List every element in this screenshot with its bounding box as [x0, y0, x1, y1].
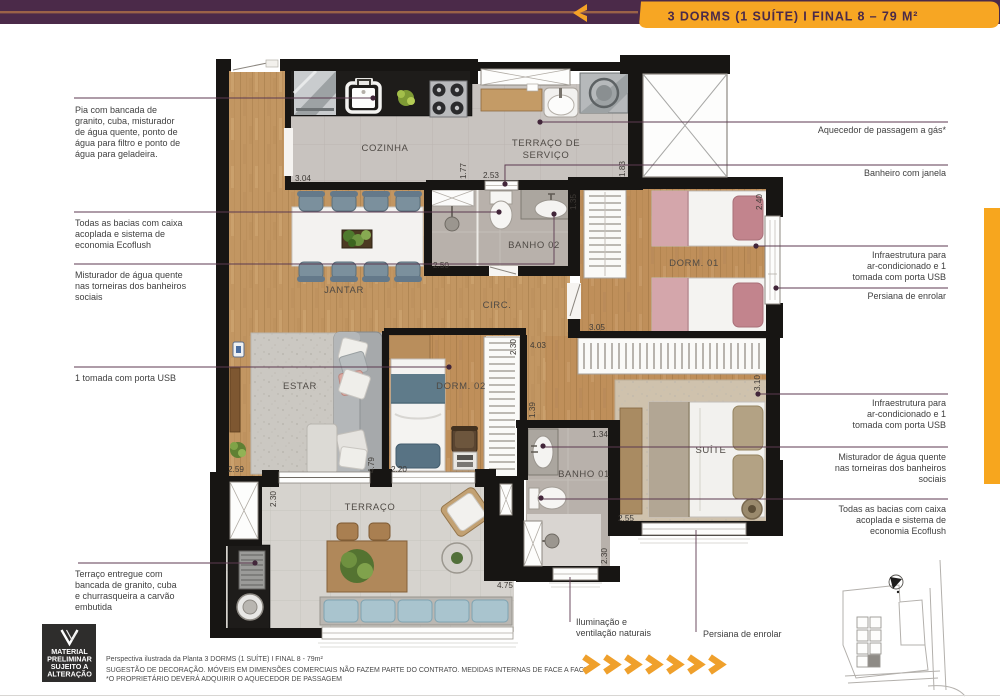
svg-text:tomada com porta USB: tomada com porta USB [852, 420, 946, 430]
svg-text:Pia com bancada de: Pia com bancada de [75, 105, 157, 115]
svg-text:1.34: 1.34 [592, 430, 608, 439]
svg-text:embutida: embutida [75, 602, 112, 612]
svg-text:Banheiro com janela: Banheiro com janela [864, 168, 946, 178]
svg-text:2.30: 2.30 [509, 339, 518, 355]
svg-text:*O PROPRIETÁRIO DEVERÁ ADQUIRI: *O PROPRIETÁRIO DEVERÁ ADQUIRIR O AQUECE… [106, 674, 342, 683]
svg-text:3 DORMS (1 SUÍTE) I FINAL 8 –: 3 DORMS (1 SUÍTE) I FINAL 8 – 79 M² [668, 9, 919, 24]
svg-text:ALTERAÇÃO: ALTERAÇÃO [47, 670, 92, 679]
svg-text:1.39: 1.39 [528, 402, 537, 418]
svg-text:bancada de granito, cuba: bancada de granito, cuba [75, 580, 177, 590]
svg-text:TERRAÇO DE: TERRAÇO DE [512, 138, 580, 149]
svg-text:4.75: 4.75 [497, 581, 513, 590]
svg-text:4.79: 4.79 [367, 457, 376, 473]
svg-text:2.20: 2.20 [391, 465, 407, 474]
svg-text:1 tomada com porta USB: 1 tomada com porta USB [75, 373, 176, 383]
svg-text:JANTAR: JANTAR [324, 285, 364, 296]
svg-text:DORM. 01: DORM. 01 [669, 258, 719, 269]
svg-text:Infraestrutura para: Infraestrutura para [872, 398, 946, 408]
svg-text:sociais: sociais [918, 474, 946, 484]
svg-text:ventilação naturais: ventilação naturais [576, 628, 652, 638]
svg-text:economia Ecoflush: economia Ecoflush [75, 240, 151, 250]
svg-text:CIRC.: CIRC. [483, 300, 512, 311]
svg-text:ar-condicionado e 1: ar-condicionado e 1 [867, 409, 946, 419]
svg-text:água para geladeira.: água para geladeira. [75, 149, 158, 159]
svg-text:ESTAR: ESTAR [283, 381, 317, 392]
svg-text:2.53: 2.53 [483, 171, 499, 180]
svg-text:de água quente, ponto de: de água quente, ponto de [75, 127, 178, 137]
svg-text:economia Ecoflush: economia Ecoflush [870, 526, 946, 536]
svg-text:Misturador de água quente: Misturador de água quente [838, 452, 946, 462]
svg-text:Perspectiva ilustrada da Plant: Perspectiva ilustrada da Planta 3 DORMS … [106, 654, 323, 663]
svg-text:2.55: 2.55 [618, 514, 634, 523]
svg-text:Todas as bacias com caixa: Todas as bacias com caixa [75, 218, 183, 228]
svg-text:BANHO 01: BANHO 01 [558, 469, 610, 480]
svg-text:Misturador de água quente: Misturador de água quente [75, 270, 183, 280]
svg-text:acoplada e sistema de: acoplada e sistema de [856, 515, 946, 525]
svg-text:Iluminação e: Iluminação e [576, 617, 627, 627]
svg-text:e churrasqueira a carvão: e churrasqueira a carvão [75, 591, 175, 601]
svg-text:TERRAÇO: TERRAÇO [345, 502, 396, 513]
svg-text:Aquecedor de passagem a gás*: Aquecedor de passagem a gás* [818, 125, 947, 135]
svg-text:sociais: sociais [75, 292, 103, 302]
svg-text:DORM. 02: DORM. 02 [436, 381, 486, 392]
svg-text:granito, cuba, misturador: granito, cuba, misturador [75, 116, 175, 126]
svg-text:2.40: 2.40 [755, 194, 764, 210]
svg-text:Persiana de enrolar: Persiana de enrolar [867, 291, 946, 301]
svg-text:tomada com porta USB: tomada com porta USB [852, 272, 946, 282]
svg-text:Infraestrutura para: Infraestrutura para [872, 250, 946, 260]
svg-text:Persiana de enrolar: Persiana de enrolar [703, 629, 782, 639]
svg-text:2.50: 2.50 [433, 261, 449, 270]
svg-text:nas torneiras dos banheiros: nas torneiras dos banheiros [835, 463, 947, 473]
svg-text:SERVIÇO: SERVIÇO [523, 150, 570, 161]
svg-text:1.35: 1.35 [569, 194, 578, 210]
svg-text:água para filtro e ponto de: água para filtro e ponto de [75, 138, 180, 148]
svg-text:1.83: 1.83 [618, 161, 627, 177]
svg-text:1.77: 1.77 [459, 163, 468, 179]
svg-text:SUGESTÃO DE DECORAÇÃO. MÓVEIS: SUGESTÃO DE DECORAÇÃO. MÓVEIS EM DIMENSÕ… [106, 665, 591, 674]
svg-text:3.04: 3.04 [295, 174, 311, 183]
svg-text:BANHO 02: BANHO 02 [508, 240, 560, 251]
svg-text:3.05: 3.05 [589, 323, 605, 332]
svg-text:2.30: 2.30 [600, 548, 609, 564]
svg-text:4.03: 4.03 [530, 341, 546, 350]
svg-text:3.10: 3.10 [753, 375, 762, 391]
svg-text:acoplada e sistema de: acoplada e sistema de [75, 229, 165, 239]
svg-text:2.30: 2.30 [269, 491, 278, 507]
svg-text:nas torneiras dos banheiros: nas torneiras dos banheiros [75, 281, 187, 291]
svg-text:ar-condicionado e 1: ar-condicionado e 1 [867, 261, 946, 271]
svg-text:Todas as bacias com caixa: Todas as bacias com caixa [838, 504, 946, 514]
svg-text:2.59: 2.59 [228, 465, 244, 474]
svg-text:COZINHA: COZINHA [362, 143, 409, 154]
svg-text:Terraço entregue com: Terraço entregue com [75, 569, 163, 579]
